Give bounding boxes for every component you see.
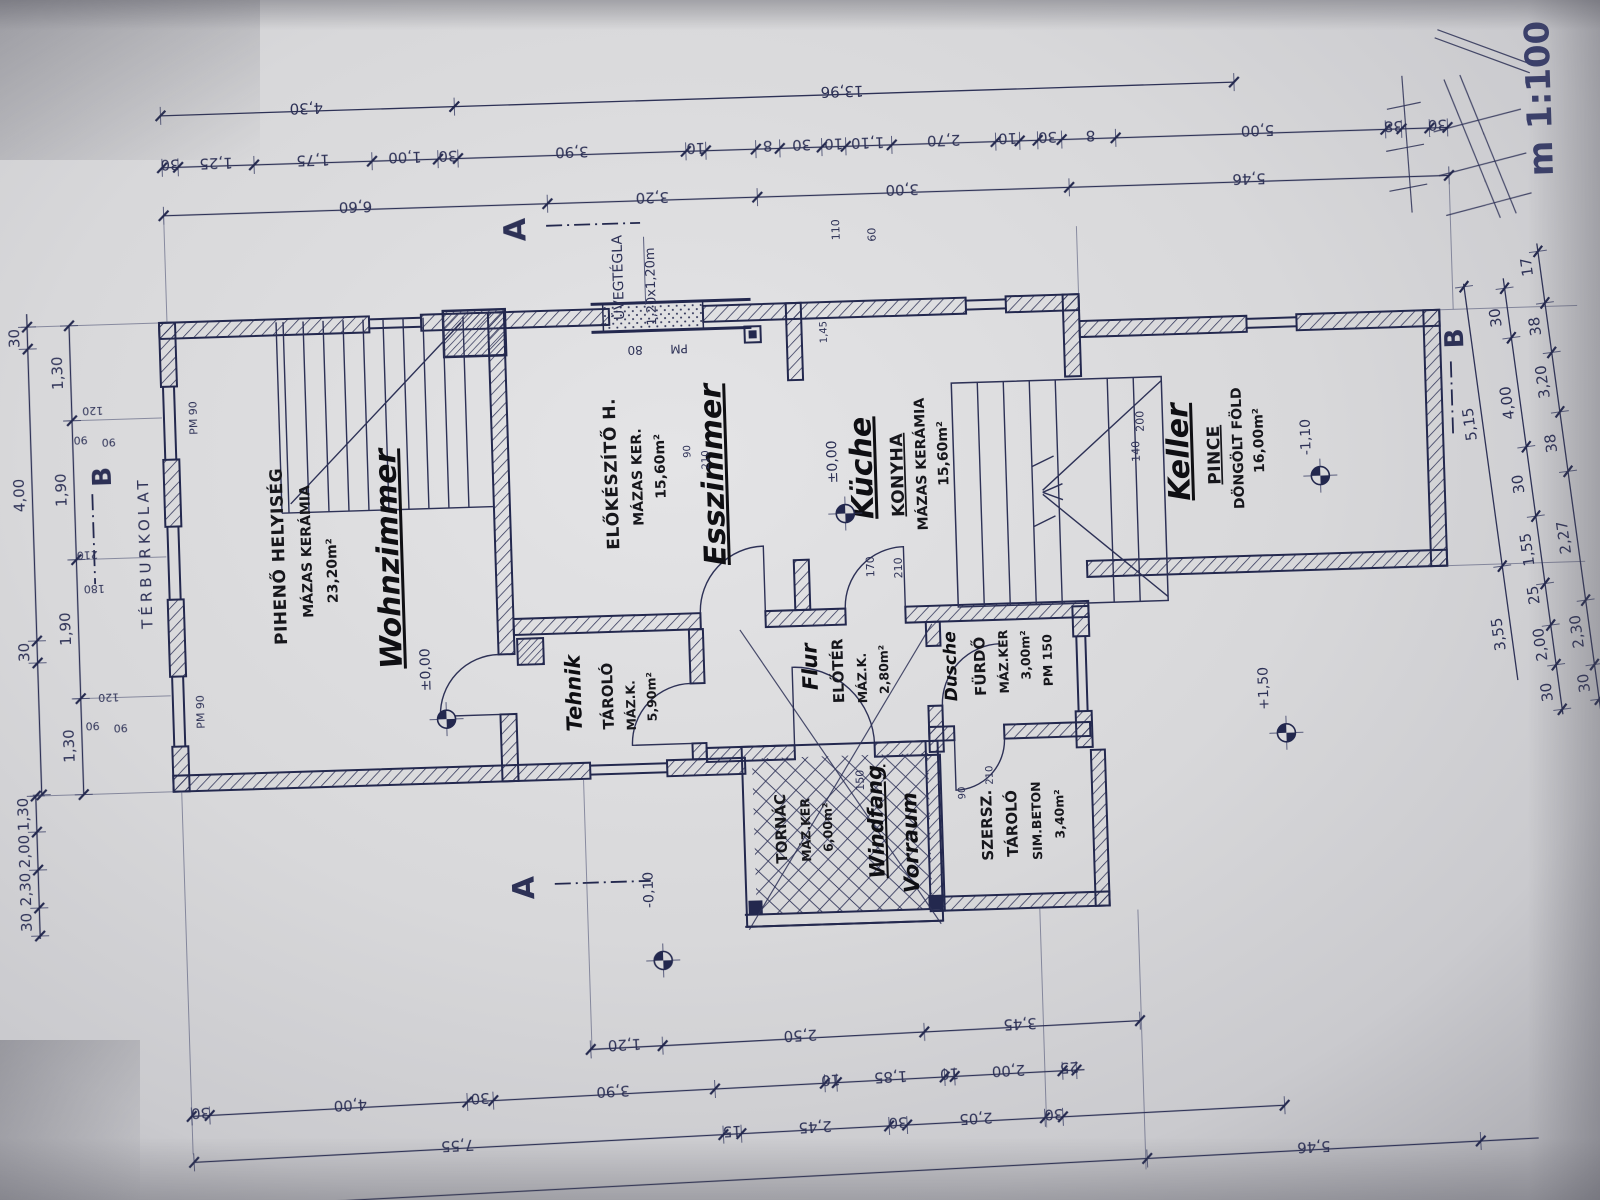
annotation: PM 90 [194,695,208,729]
dim-label: 1,30 [14,798,33,832]
annotation: 150 [853,769,867,790]
dim-label: 2,00 [991,1061,1025,1081]
room-label-tarolo: Tehnik [561,652,587,732]
annotation: 90 [73,433,87,446]
room-label-flur: MÁZ.K. [854,653,871,704]
room-label-szersz: TÁROLÓ [1001,790,1022,857]
dim-label: 8 [763,137,773,155]
room-label-keller: PINCE [1204,425,1226,485]
dim-label: 30 [438,147,458,166]
room-label-keller: Keller [1160,400,1198,501]
annotation: 90 [957,786,968,799]
room-label-tarolo: MÁZ.K. [622,680,639,731]
room-label-wohnzimmer: Wohnzimmer [368,446,410,669]
dim-label: 3,90 [555,142,589,161]
annotation: PM 90 [186,401,200,435]
dim-label: 1,00 [388,148,422,167]
dim-label: 5,00 [1240,121,1274,140]
annotation: 170 [864,556,878,577]
annotation: -0,10 [640,872,657,909]
dim-label: 4,30 [289,99,323,118]
dim-label: 38 [1384,117,1404,136]
dim-label: 3,00 [885,180,919,199]
dim-label: 10 [940,1064,960,1083]
section-a-top: A [498,217,534,242]
annotation: 140 [1129,441,1143,462]
room-label-keller: 16,00m² [1250,408,1268,473]
room-label-tornac: Vorraum [897,792,924,894]
dim-label: 2,45 [798,1117,832,1137]
room-label-flur: Flur [797,641,823,690]
section-b-right: B [1440,328,1471,349]
glass-block-size: 1,20x1,20m [643,247,660,326]
dim-label: 30 [792,135,812,154]
room-label-flur: ELŐTÉR [826,638,848,704]
annotation: 90 [101,435,115,448]
dim-label: 10 [686,139,706,158]
dim-label: 30 [5,329,24,349]
dim-label: 8 [1086,126,1096,144]
dim-label: 4,00 [333,1095,367,1115]
room-label-esszimmer: 15,60m² [652,434,670,499]
annotation: 210 [892,557,906,578]
dim-label: 1,90 [56,612,75,646]
room-label-tornac: 6,00m² [819,802,836,852]
annotation: +1,50 [1255,667,1272,710]
dim-label: 10 [821,1070,841,1089]
room-label-flur: 2,80m² [875,645,892,695]
dim-label: 1,75 [296,151,330,170]
annotation: ±0,00 [824,440,841,483]
room-label-szersz: SZERSZ. [977,790,997,861]
dim-label: 1,20 [607,1035,641,1055]
room-label-fuerdo: FÜRDŐ [968,637,990,697]
dim-label: 15 [722,1122,742,1141]
annotation: ±0,00 [417,648,434,691]
room-label-esszimmer: MÁZAS KER. [628,428,648,526]
dim-label: 1,30 [60,729,79,763]
room-label-tarolo: TÁROLÓ [597,662,618,729]
dim-label: 30 [17,913,36,933]
annotation: 90 [682,445,693,458]
annotation: 180 [84,582,105,596]
room-label-fuerdo: PM 150 [1039,634,1056,687]
dim-label: 1,90 [52,473,71,507]
annotation: 210 [984,765,996,784]
dim-label: 2,70 [927,131,961,150]
dim-label: 30 [1428,115,1448,134]
dim-label: 30 [15,643,34,663]
section-b-left: B [87,466,118,487]
dim-label: 5,46 [1232,169,1266,188]
room-label-esszimmer: Esszimmer [693,381,734,566]
dim-label: 30 [470,1089,490,1108]
dim-label: 1,85 [873,1067,907,1087]
annotation: 120 [82,404,103,418]
annotation: 200 [1133,411,1147,432]
annotation: 90 [85,719,99,732]
dim-label: 30 [1485,307,1505,328]
dim-label: 13,96 [820,82,863,101]
annotation: PM [670,341,688,356]
dim-label: 25 [1059,1058,1079,1077]
room-label-kueche: KONYHA [887,432,910,517]
annotation: 210 [77,548,98,562]
room-label-tornac: MÁZ.KER [797,797,814,862]
dim-label: 2,05 [959,1109,993,1129]
dim-label: 3,20 [635,188,669,207]
dim-label: 30 [1038,128,1058,147]
annotation: 210 [700,450,712,469]
dim-label: 3,45 [1003,1014,1037,1034]
dim-label: 10 [998,129,1018,148]
room-label-kueche: Küche [843,416,881,520]
dim-label: 4,00 [10,478,29,512]
dim-label: 30 [191,1103,211,1122]
room-label-fuerdo: Dusche [940,631,962,702]
annotation: -1,10 [1298,419,1315,456]
dim-label: 30 [888,1113,908,1132]
annotation: 60 [865,227,878,241]
annotation: 90 [113,721,127,734]
dim-label: 6,60 [338,197,372,216]
room-label-kueche: 15,60m² [934,421,952,486]
room-label-tornac: TORNÁC [770,794,791,864]
plan-canvas: 4,3013,96301,251,751,00303,9010830101,10… [0,0,1600,1200]
dim-label: 30 [1508,474,1528,495]
room-label-tarolo: 5,90m² [643,672,660,722]
room-label-szersz: SIM.BETON [1028,781,1045,860]
annotation: 120 [98,690,119,704]
dim-label: 1,30 [48,356,67,390]
dim-label: 10 [824,134,844,153]
annotation: 110 [829,219,843,240]
room-label-fuerdo: MÁZ.KER [995,629,1012,694]
room-label-szersz: 3,40m² [1051,789,1068,839]
dim-label: 2,50 [783,1026,817,1046]
room-label-wohnzimmer: 23,20m² [324,538,342,603]
dim-label: 3,90 [596,1081,630,1101]
section-a-bottom: A [507,875,543,900]
dim-label: 30 [1044,1105,1064,1124]
room-label-fuerdo: 3,00m² [1017,630,1034,680]
dim-label: 2,30 [16,872,35,906]
floor-plan-photo: 4,3013,96301,251,751,00303,9010830101,10… [0,0,1600,1200]
dim-label: 2,00 [15,835,34,869]
annotation: 80 [627,343,643,357]
dim-label: 1,10 [851,133,885,152]
annotation: 1,45 [818,321,830,344]
